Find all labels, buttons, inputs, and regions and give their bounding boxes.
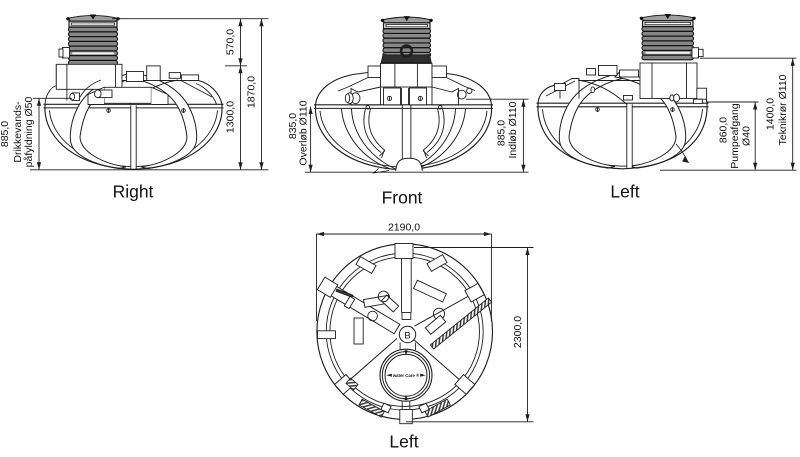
svg-text:Teknikrør Ø110: Teknikrør Ø110	[777, 74, 789, 145]
svg-text:1400,0: 1400,0	[765, 98, 777, 130]
svg-text:B: B	[404, 331, 410, 342]
svg-text:570,0: 570,0	[225, 29, 237, 55]
svg-text:2300,0: 2300,0	[512, 316, 524, 348]
svg-text:Indløb Ø110: Indløb Ø110	[507, 101, 519, 158]
svg-text:Front: Front	[382, 188, 423, 208]
svg-text:Pumpeafgang: Pumpeafgang	[729, 103, 741, 169]
svg-text:Left: Left	[389, 432, 418, 452]
svg-text:885,0: 885,0	[0, 121, 11, 147]
svg-text:Left: Left	[610, 182, 639, 202]
svg-text:1870,0: 1870,0	[246, 76, 258, 108]
svg-text:860,0: 860,0	[718, 117, 730, 143]
svg-text:Right: Right	[113, 182, 154, 202]
svg-text:885,0: 885,0	[496, 120, 508, 146]
svg-text:2190,0: 2190,0	[388, 222, 420, 234]
svg-text:Ø40: Ø40	[741, 126, 753, 146]
svg-text:water Care ®: water Care ®	[392, 373, 420, 378]
svg-text:Overløb Ø110: Overløb Ø110	[298, 100, 310, 165]
svg-text:påfyldning Ø50: påfyldning Ø50	[23, 97, 35, 168]
svg-text:1300,0: 1300,0	[225, 101, 237, 133]
